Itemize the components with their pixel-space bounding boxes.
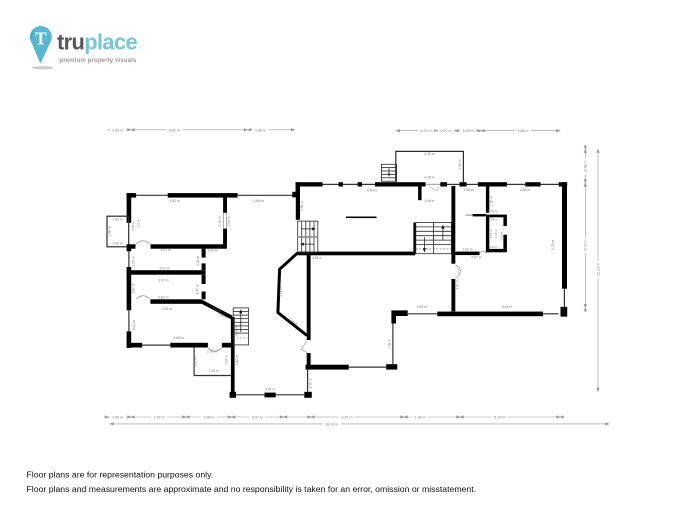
- svg-text:1.96 m: 1.96 m: [424, 199, 434, 203]
- svg-text:1.83 m: 1.83 m: [194, 357, 198, 367]
- svg-text:3.07 m: 3.07 m: [159, 266, 170, 270]
- svg-text:2.56 m: 2.56 m: [417, 305, 428, 309]
- svg-text:1.05 m: 1.05 m: [463, 248, 473, 252]
- svg-text:2.50 m: 2.50 m: [158, 295, 169, 299]
- svg-text:6.07 m: 6.07 m: [252, 416, 263, 420]
- svg-text:1.00 m: 1.00 m: [235, 326, 239, 336]
- svg-text:0.97 m: 0.97 m: [441, 129, 452, 133]
- svg-text:0.76 m: 0.76 m: [218, 216, 222, 226]
- svg-text:4.57 m: 4.57 m: [161, 248, 172, 252]
- svg-text:1.67 m: 1.67 m: [196, 284, 200, 294]
- svg-text:4.08 m: 4.08 m: [312, 256, 322, 260]
- svg-text:2.47 m: 2.47 m: [471, 255, 482, 259]
- svg-text:1.52 m: 1.52 m: [154, 416, 165, 420]
- svg-text:5.82 m: 5.82 m: [169, 128, 180, 132]
- svg-text:3.07 m: 3.07 m: [158, 279, 169, 283]
- svg-text:1.06 m: 1.06 m: [112, 416, 123, 420]
- svg-text:1.86 m: 1.86 m: [253, 199, 264, 203]
- svg-text:6.11 m: 6.11 m: [132, 320, 136, 330]
- svg-text:1.68 m: 1.68 m: [108, 226, 112, 237]
- svg-text:4.38 m: 4.38 m: [424, 176, 435, 180]
- svg-text:2.11 m: 2.11 m: [279, 287, 283, 297]
- svg-text:1.97 m: 1.97 m: [421, 129, 432, 133]
- svg-text:4.88 m: 4.88 m: [518, 129, 529, 133]
- svg-text:1.36 m: 1.36 m: [494, 229, 498, 238]
- svg-text:truplace: truplace: [57, 30, 137, 55]
- svg-text:1.26 m: 1.26 m: [463, 129, 474, 133]
- svg-text:5.82 m: 5.82 m: [170, 199, 181, 203]
- svg-text:1.08 m: 1.08 m: [112, 218, 123, 222]
- svg-text:2.91 m: 2.91 m: [455, 279, 459, 289]
- svg-text:1.98 m: 1.98 m: [584, 161, 588, 172]
- svg-text:5.19 m: 5.19 m: [502, 305, 513, 309]
- svg-text:premium property visuals: premium property visuals: [60, 57, 137, 64]
- svg-text:1.98 m: 1.98 m: [255, 128, 266, 132]
- svg-text:3.97 m: 3.97 m: [342, 416, 353, 420]
- svg-text:0.81 m: 0.81 m: [489, 229, 493, 238]
- svg-text:1.62 m: 1.62 m: [131, 283, 135, 293]
- svg-text:T: T: [35, 28, 47, 48]
- svg-text:1.98 m: 1.98 m: [227, 216, 231, 226]
- svg-text:2.96 m: 2.96 m: [300, 201, 304, 211]
- svg-text:1.38 m: 1.38 m: [387, 339, 391, 349]
- svg-text:5.73 m: 5.73 m: [551, 240, 555, 251]
- svg-text:1.98 m: 1.98 m: [458, 159, 462, 169]
- svg-text:1.98 m: 1.98 m: [415, 416, 426, 420]
- svg-text:2.06 m: 2.06 m: [207, 350, 217, 354]
- svg-text:1.03 m: 1.03 m: [224, 355, 228, 365]
- svg-text:12.31 m: 12.31 m: [596, 263, 600, 276]
- svg-text:16.10 m: 16.10 m: [325, 422, 338, 426]
- svg-text:1.10 m: 1.10 m: [137, 219, 141, 229]
- svg-text:1.43 m: 1.43 m: [112, 128, 123, 132]
- svg-text:1.95 m: 1.95 m: [464, 188, 475, 192]
- svg-text:2.36 m: 2.36 m: [208, 369, 218, 373]
- svg-text:1.20 m: 1.20 m: [131, 256, 135, 266]
- svg-text:5.19 m: 5.19 m: [494, 416, 505, 420]
- svg-text:5.73 m: 5.73 m: [584, 240, 588, 251]
- svg-text:2.55 m: 2.55 m: [162, 307, 173, 311]
- svg-text:Floor plans and measurements a: Floor plans and measurements are approxi…: [27, 484, 477, 494]
- svg-text:0.84 m: 0.84 m: [489, 218, 498, 222]
- svg-text:1.90 m: 1.90 m: [490, 196, 494, 206]
- svg-text:2.08 m: 2.08 m: [131, 221, 135, 231]
- svg-text:Floor plans are for representa: Floor plans are for representation purpo…: [27, 470, 214, 480]
- svg-text:1.04 m: 1.04 m: [196, 256, 200, 266]
- svg-text:1.90 m: 1.90 m: [207, 249, 218, 253]
- svg-text:9.64 m: 9.64 m: [367, 188, 378, 192]
- svg-text:4.39 m: 4.39 m: [424, 152, 435, 156]
- svg-text:1.66 m: 1.66 m: [112, 242, 123, 246]
- svg-text:0.97 m: 0.97 m: [265, 388, 275, 392]
- svg-text:4.66 m: 4.66 m: [173, 336, 184, 340]
- svg-text:2.35 m: 2.35 m: [500, 231, 504, 240]
- svg-text:1.70 m: 1.70 m: [487, 209, 497, 213]
- svg-text:4.88 m: 4.88 m: [520, 188, 531, 192]
- svg-text:0.64 m: 0.64 m: [489, 245, 498, 249]
- svg-text:1.30 m: 1.30 m: [308, 378, 312, 388]
- svg-text:1.10 m: 1.10 m: [235, 355, 239, 365]
- svg-text:3.98 m: 3.98 m: [204, 416, 215, 420]
